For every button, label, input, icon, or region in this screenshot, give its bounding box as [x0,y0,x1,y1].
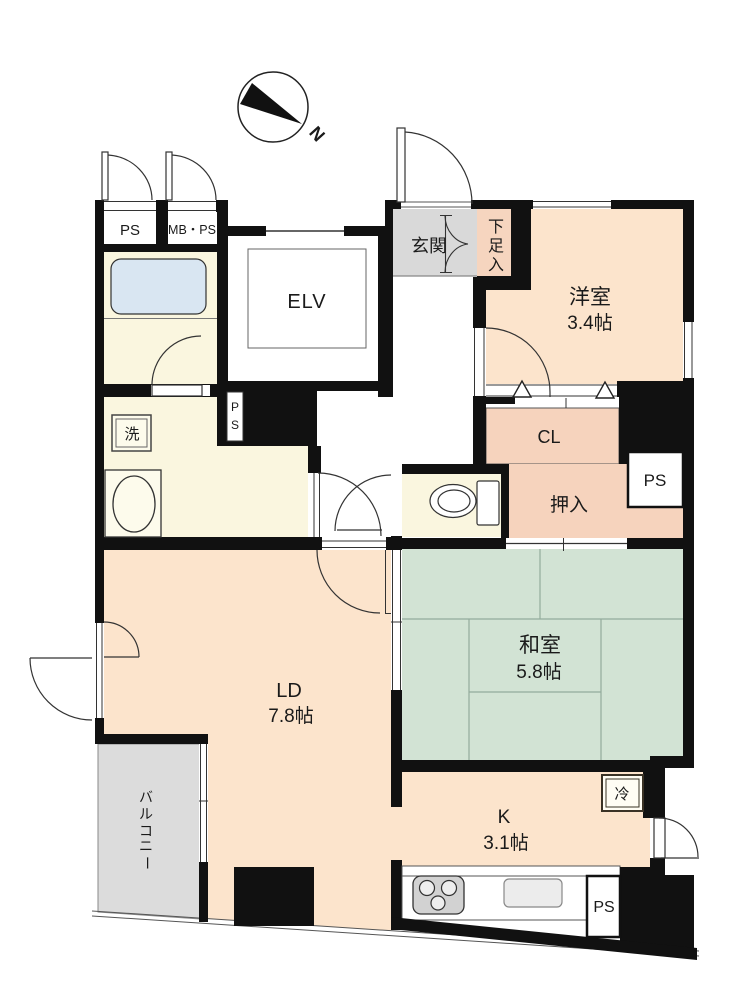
svg-text:ー: ー [139,856,155,870]
svg-text:下: 下 [488,219,504,236]
svg-text:洗: 洗 [124,426,139,443]
svg-text:5.8帖: 5.8帖 [516,661,561,683]
svg-text:3.4帖: 3.4帖 [567,312,612,334]
svg-text:玄関: 玄関 [411,236,447,256]
svg-text:洋室: 洋室 [569,286,611,309]
svg-text:S: S [231,418,239,432]
svg-text:バ: バ [139,789,153,805]
svg-text:PS: PS [593,899,614,916]
svg-text:ELV: ELV [287,291,326,313]
svg-text:PS: PS [644,471,667,490]
svg-text:ル: ル [139,806,153,822]
svg-text:PS: PS [120,222,140,239]
svg-text:冷: 冷 [614,786,629,803]
svg-text:CL: CL [537,427,560,447]
svg-text:押入: 押入 [550,494,588,516]
svg-text:コ: コ [139,823,153,839]
svg-text:入: 入 [488,257,504,274]
svg-text:K: K [498,807,511,828]
svg-text:MB・PS: MB・PS [168,223,216,237]
svg-text:P: P [231,400,239,414]
svg-text:足: 足 [488,238,504,255]
svg-text:LD: LD [276,680,302,702]
svg-text:7.8帖: 7.8帖 [268,705,313,727]
svg-text:ニ: ニ [139,838,153,854]
svg-text:和室: 和室 [519,634,561,657]
svg-text:3.1帖: 3.1帖 [483,832,528,854]
